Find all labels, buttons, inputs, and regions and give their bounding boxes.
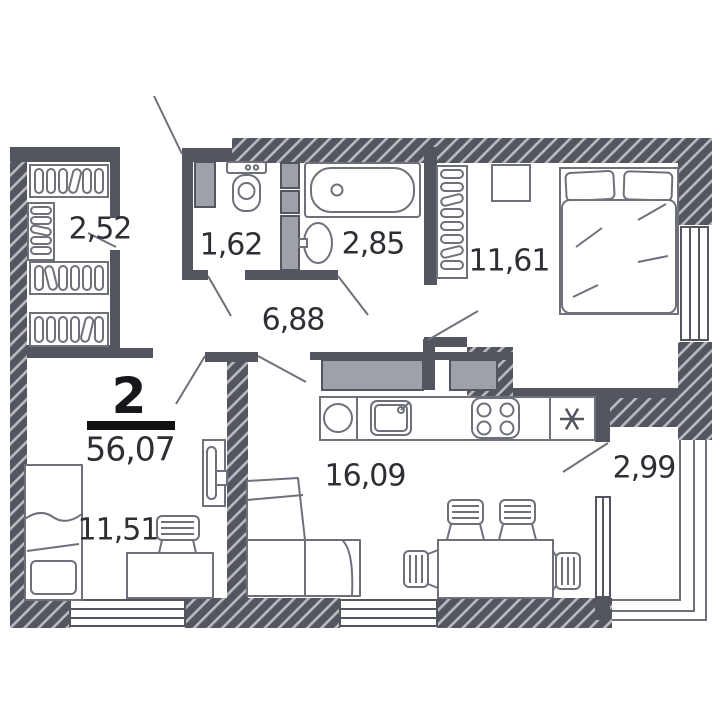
washing-machine xyxy=(324,404,352,432)
dining-chair-3 xyxy=(404,550,438,588)
wall-bottom-a xyxy=(27,598,70,628)
shaft-bath-2 xyxy=(281,191,299,213)
balcony-door-window xyxy=(596,497,610,597)
area-label-kitchen-living: 16,09 xyxy=(325,459,406,494)
shaft-bath-1 xyxy=(281,163,299,188)
dining-table xyxy=(438,540,553,598)
wall-closet-right-lower xyxy=(110,250,120,358)
stove xyxy=(472,398,519,438)
floor-plan: 2,52 1,62 2,85 11,61 6,88 16,09 2,99 11,… xyxy=(0,0,720,720)
single-bed xyxy=(25,465,82,600)
wall-wc-left xyxy=(182,157,193,280)
desk xyxy=(127,553,213,598)
wall-bottom-b xyxy=(185,598,340,628)
tv xyxy=(203,440,227,506)
closet-shelf-top xyxy=(30,165,108,197)
nightstand xyxy=(492,165,530,201)
area-label-wardrobe: 2,52 xyxy=(69,212,132,247)
bedroom-wardrobe xyxy=(437,166,467,278)
bath-door-leaf xyxy=(338,276,368,315)
area-label-bedroom-2: 11,51 xyxy=(78,513,159,548)
wall-corridor-bottom-bar xyxy=(205,352,258,362)
apartment-rooms-count: 2 xyxy=(112,367,147,425)
kitchen-sink xyxy=(371,401,411,435)
closet-shelf-middle xyxy=(30,262,108,294)
wall-kitchen-vent-stub xyxy=(423,339,435,390)
wall-bath-right xyxy=(424,147,437,285)
double-bed xyxy=(560,168,678,314)
closet-side-rack xyxy=(28,203,54,260)
area-label-bathroom: 2,85 xyxy=(342,227,405,262)
bathtub xyxy=(305,163,420,217)
shaft-bath-3 xyxy=(281,216,299,270)
area-label-hallway: 6,88 xyxy=(262,303,325,338)
room2-door-leaf xyxy=(176,356,205,404)
shaft-wc xyxy=(195,162,215,207)
hall-cabinet-right xyxy=(450,360,497,390)
wall-rooms-divider xyxy=(227,362,248,600)
wall-right-upper xyxy=(678,163,712,225)
wall-kitchen-corridor xyxy=(310,352,513,360)
bedroom-window xyxy=(681,227,708,340)
apartment-total-area: 56,07 xyxy=(85,430,174,469)
kitchen-counter xyxy=(320,397,595,440)
wall-kitchen-balcony-bottom xyxy=(595,597,610,620)
area-label-balcony: 2,99 xyxy=(613,451,676,486)
bedroom-door-leaf xyxy=(428,311,478,340)
wall-bottom-c xyxy=(437,598,612,628)
wall-closet-right-upper xyxy=(110,147,120,218)
area-label-wc: 1,62 xyxy=(200,228,263,263)
wall-balcony-top-band xyxy=(610,398,678,427)
bathroom-sink xyxy=(299,223,332,263)
wall-right-lower xyxy=(678,342,712,440)
wall-bath-bottom xyxy=(245,270,338,280)
desk-chair xyxy=(157,516,199,553)
entrance-door-leaf xyxy=(154,96,182,154)
wall-closet-top xyxy=(10,147,120,162)
closet-shelf-bottom xyxy=(30,313,108,346)
dining-chair-2 xyxy=(499,500,536,540)
dining-chair-1 xyxy=(447,500,484,540)
wall-closet-bottom-stub xyxy=(110,348,153,358)
area-label-bedroom: 11,61 xyxy=(469,244,550,279)
wall-kitchen-balcony-top xyxy=(595,398,610,442)
wc-door-leaf xyxy=(208,276,231,316)
wall-wc-bottom-left xyxy=(182,270,208,280)
toilet-fixture xyxy=(227,162,266,211)
wall-top xyxy=(232,138,712,163)
kitchen-door-leaf xyxy=(258,356,306,382)
corner-sofa xyxy=(247,478,360,596)
room2-window xyxy=(70,600,185,626)
floor-plan-drawing xyxy=(0,0,720,720)
dining-chair-4 xyxy=(553,551,580,590)
hall-cabinet-left xyxy=(322,360,423,390)
balcony-door-leader xyxy=(563,443,608,472)
kitchen-window xyxy=(340,600,437,626)
